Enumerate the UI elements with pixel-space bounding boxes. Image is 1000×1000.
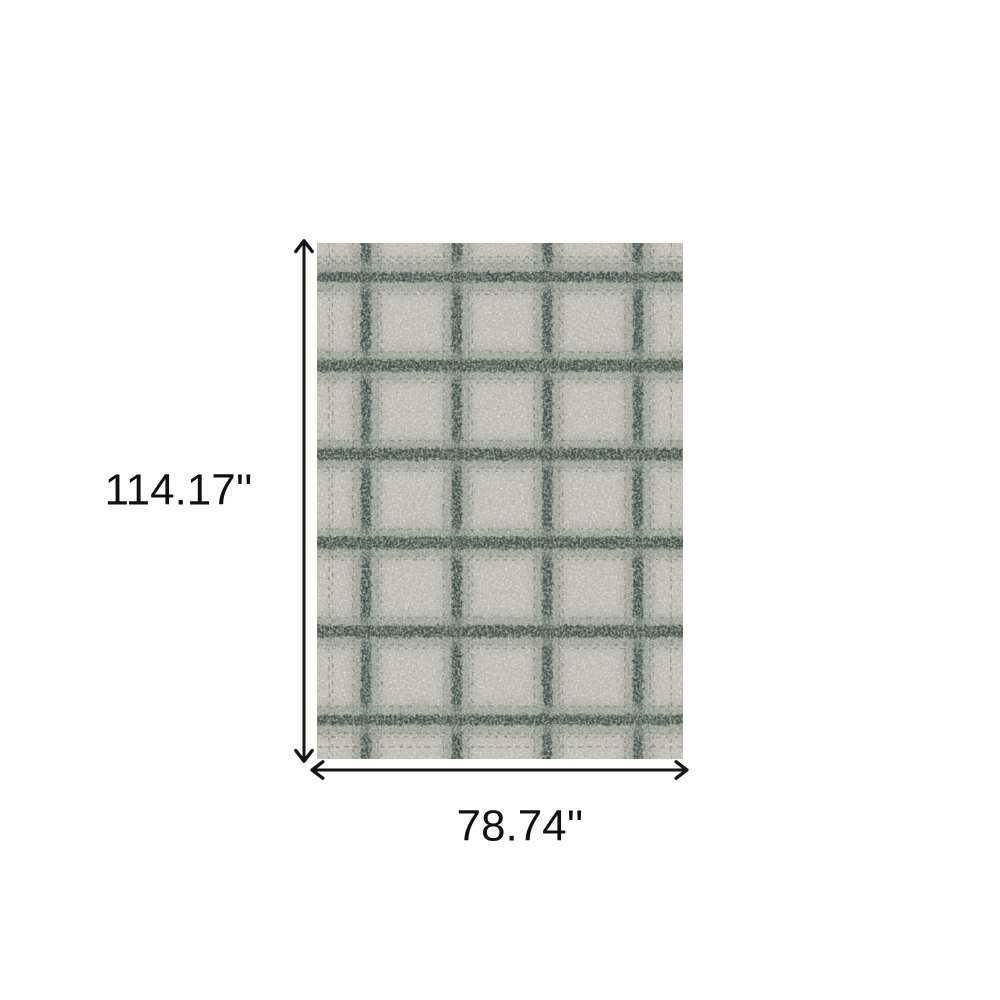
svg-text:78.74'': 78.74''	[457, 802, 584, 851]
svg-text:114.17'': 114.17''	[104, 466, 252, 515]
